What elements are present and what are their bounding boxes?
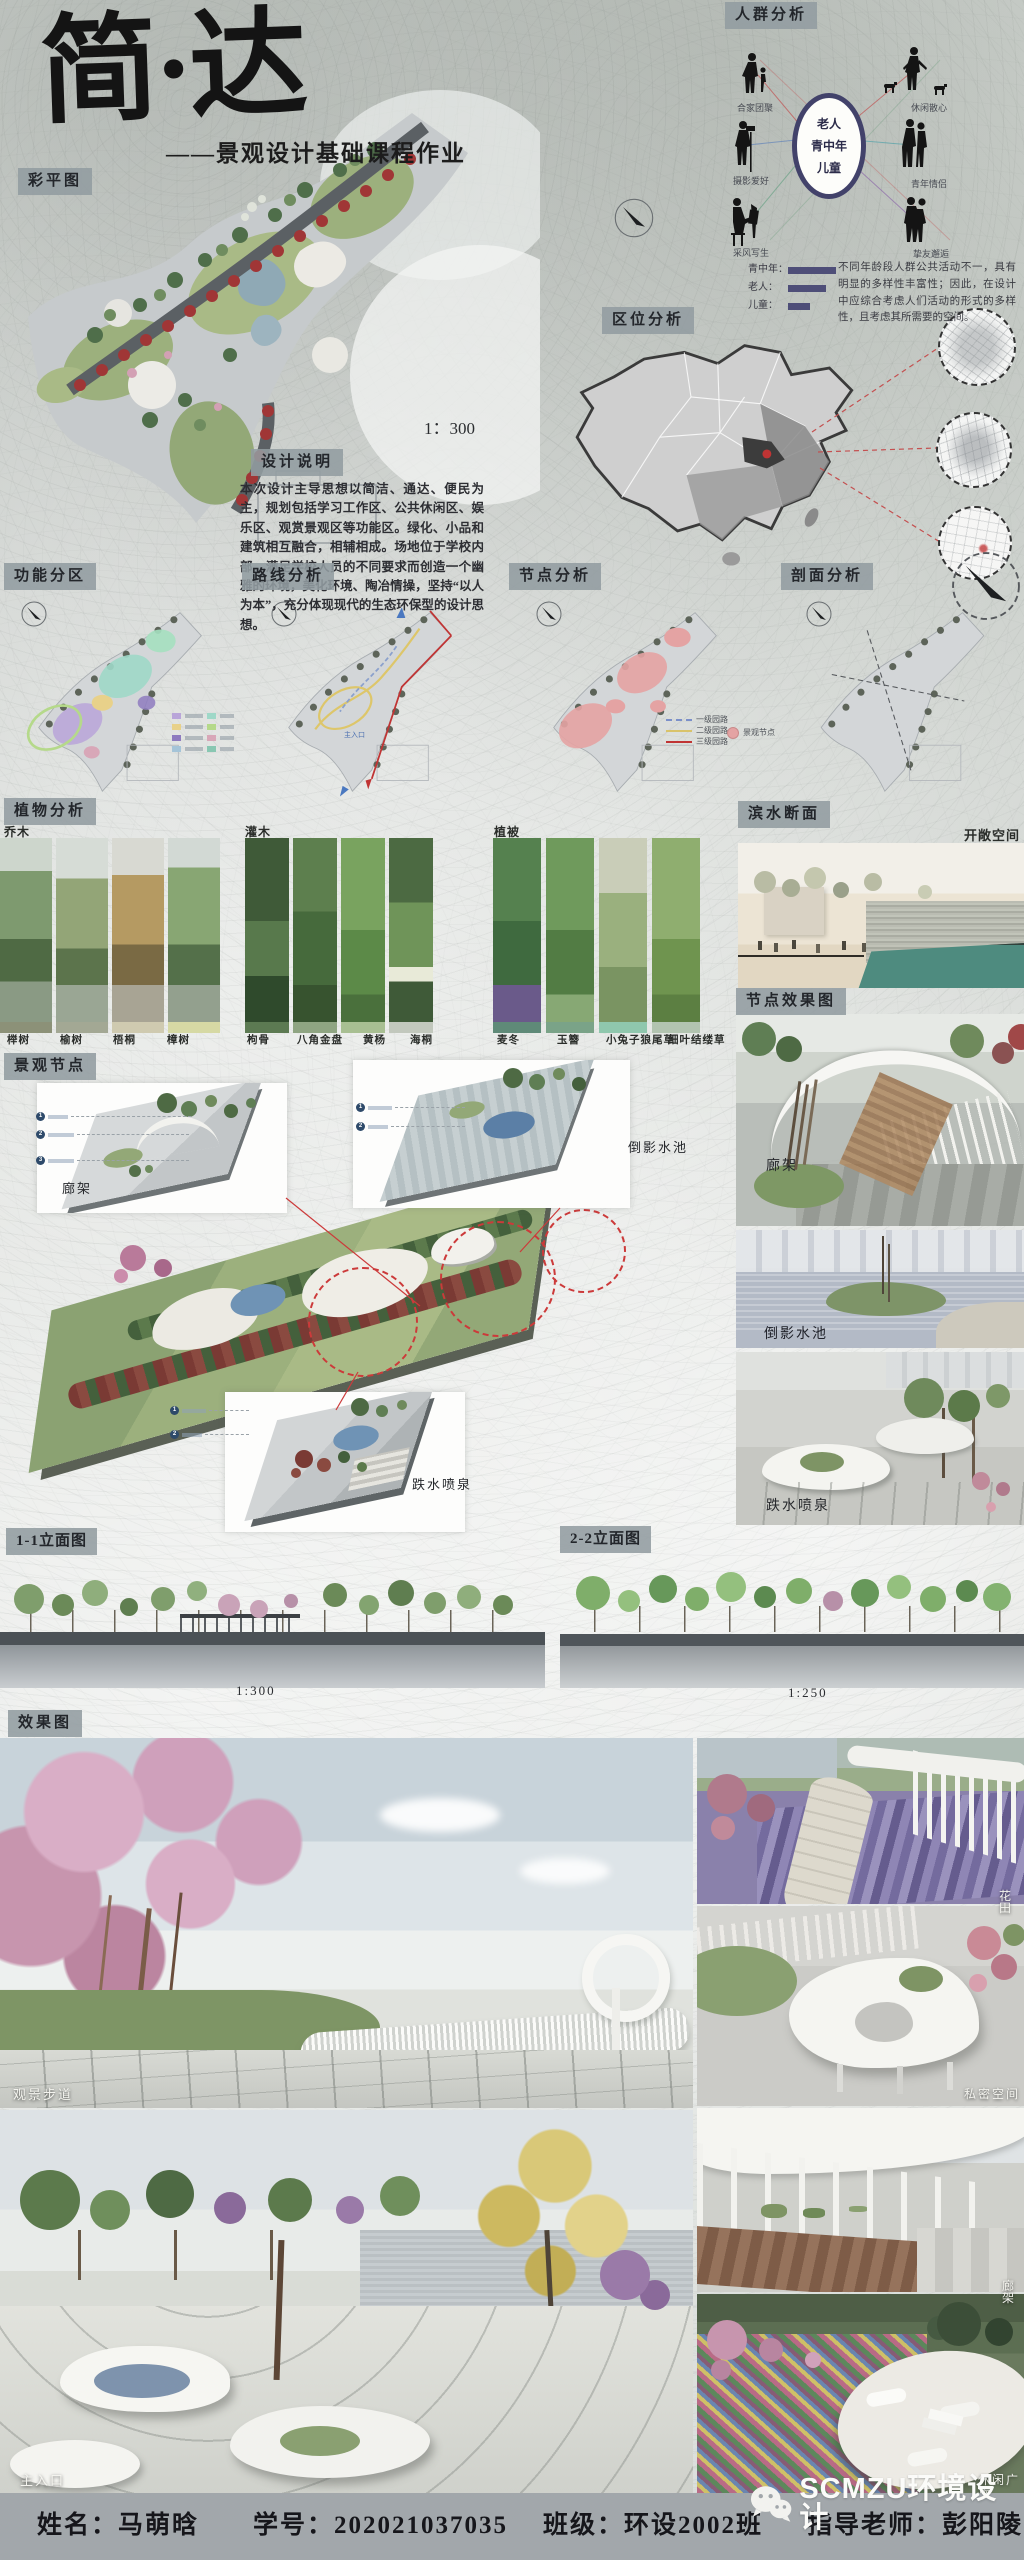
legend-bar bbox=[788, 285, 826, 292]
render-flower-field bbox=[697, 1738, 1024, 1904]
couple-figure-icon bbox=[900, 118, 930, 176]
plants-section-label: 植物分析 bbox=[4, 798, 96, 825]
kidney-table bbox=[789, 1958, 979, 2068]
table-planter bbox=[899, 1966, 943, 1992]
flower-shrubs bbox=[972, 1472, 990, 1490]
compass-icon bbox=[20, 600, 48, 628]
crowd-section-label: 人群分析 bbox=[725, 2, 817, 29]
legend-label: 老人： bbox=[748, 283, 788, 293]
axon-label: 倒影水池 bbox=[628, 1141, 688, 1154]
stair-column bbox=[612, 1988, 620, 2058]
footer-class: 班级：环设2002班 bbox=[543, 2513, 763, 2538]
dark-trees bbox=[937, 2302, 981, 2346]
analysis-panel-label: 功能分区 bbox=[4, 563, 96, 590]
plant-swatch bbox=[245, 1022, 289, 1033]
crowd-group-elderly: 老人 bbox=[797, 113, 861, 135]
plant-swatch bbox=[341, 1022, 385, 1033]
route-line-1 bbox=[666, 719, 692, 721]
painter-figure-icon bbox=[727, 196, 761, 248]
wechat-icon bbox=[748, 2483, 793, 2525]
watermark: SCMZU环境设计 bbox=[748, 2478, 1024, 2530]
plant-name: 梧桐 bbox=[113, 1036, 136, 1047]
page-subtitle: ——景观设计基础课程作业 bbox=[166, 142, 466, 165]
tower-skyline bbox=[886, 1352, 1024, 1388]
plan-scale: 1：300 bbox=[424, 420, 475, 437]
presentation-board: 简·达 ——景观设计基础课程作业 彩平图 bbox=[0, 0, 1024, 2560]
plant-swatch bbox=[389, 1022, 433, 1033]
plant-photo bbox=[341, 838, 385, 1022]
tree-band bbox=[20, 2170, 80, 2230]
render-label: 廊架 bbox=[1002, 2280, 1024, 2304]
elevation-ground bbox=[0, 1632, 545, 1645]
tree-cluster bbox=[904, 1378, 944, 1418]
axon-callout: 3 bbox=[36, 1156, 189, 1165]
plant-swatch bbox=[112, 1022, 164, 1033]
crowd-dots bbox=[758, 941, 762, 950]
plant-name: 枸骨 bbox=[247, 1036, 270, 1047]
render-label: 观景步道 bbox=[13, 2088, 73, 2101]
cloud bbox=[380, 1798, 500, 1832]
elevation-earth bbox=[0, 1645, 545, 1688]
family-figure-icon bbox=[740, 52, 770, 102]
axon-leader-lines bbox=[0, 1080, 700, 1540]
shrub-pink bbox=[707, 1774, 747, 1814]
white-bench bbox=[876, 1418, 974, 1454]
elevation-canopy bbox=[576, 1576, 610, 1610]
island-tree bbox=[882, 1236, 884, 1294]
pink-shrub-row bbox=[707, 2320, 747, 2360]
elevation-scale: 1:250 bbox=[788, 1686, 828, 1699]
purple-tree bbox=[600, 2250, 650, 2300]
render-label: 私密空间 bbox=[964, 2088, 1020, 2100]
plant-photo bbox=[546, 838, 594, 1022]
plant-photo bbox=[389, 838, 433, 1022]
plant-photo bbox=[56, 838, 108, 1022]
analysis-panel-label: 路线分析 bbox=[242, 563, 334, 590]
elevation-pergola bbox=[180, 1614, 300, 1634]
tree-cluster bbox=[754, 871, 776, 893]
tree-cluster bbox=[742, 1022, 776, 1056]
node-legend-label: 景观节点 bbox=[743, 729, 775, 737]
cloud bbox=[520, 1858, 610, 1884]
plant-name: 麦冬 bbox=[497, 1036, 520, 1047]
figure-label: 采风写生 bbox=[718, 249, 784, 258]
lawn-glimpse bbox=[761, 2204, 787, 2218]
axon-callout: 2 bbox=[170, 1430, 249, 1439]
node-legend-dot bbox=[727, 727, 739, 739]
building-mass bbox=[764, 887, 824, 935]
route-legend-label: 三级园路 bbox=[696, 738, 728, 746]
plant-photo bbox=[493, 838, 541, 1022]
plant-swatch bbox=[168, 1022, 220, 1033]
plan-section-label: 彩平图 bbox=[18, 168, 92, 195]
elevation-2-drawing bbox=[560, 1558, 1024, 1688]
figure-label: 摄影爱好 bbox=[718, 177, 784, 186]
main-entry-annotation: 主入口 bbox=[344, 732, 365, 739]
landscape-nodes-label: 景观节点 bbox=[4, 1053, 96, 1080]
legend-label: 儿童： bbox=[748, 301, 788, 311]
table-opening bbox=[855, 2002, 913, 2042]
plant-swatch bbox=[546, 1022, 594, 1033]
crowd-group-children: 儿童 bbox=[797, 157, 861, 179]
dog-walker-figure-icon bbox=[898, 46, 932, 98]
plant-photo bbox=[0, 838, 52, 1022]
axon-label: 廊架 bbox=[62, 1182, 92, 1195]
design-note-text: 本次设计主导思想以简洁、通达、便民为主，规划包括学习工作区、公共休闲区、娱乐区、… bbox=[240, 480, 484, 635]
figure-label: 挚友邂逅 bbox=[898, 250, 964, 259]
dog-icon bbox=[882, 82, 900, 94]
plant-swatch bbox=[293, 1022, 337, 1033]
paving bbox=[0, 2050, 693, 2108]
legend-bar bbox=[788, 267, 836, 274]
plant-name: 细叶结缕草 bbox=[668, 1036, 726, 1047]
node-render-label: 廊架 bbox=[766, 1160, 798, 1174]
plant-name: 榉树 bbox=[7, 1036, 30, 1047]
figure-label: 休闲散心 bbox=[896, 104, 962, 113]
bench-water bbox=[94, 2364, 190, 2398]
axon-callout: 1 bbox=[36, 1112, 191, 1121]
plant-name: 樟树 bbox=[167, 1036, 190, 1047]
figure-label: 合家团聚 bbox=[722, 104, 788, 113]
plant-swatch bbox=[493, 1022, 541, 1033]
plant-group-title: 灌木 bbox=[245, 826, 271, 838]
page-title: 简·达 bbox=[38, 0, 306, 138]
crowd-note: 不同年龄段人群公共活动不一，具有明显的多样性丰富性；因此，在设计中应综合考虑人们… bbox=[838, 260, 1016, 327]
route-legend-label: 一级园路 bbox=[696, 716, 728, 724]
node-render-label: 倒影水池 bbox=[764, 1328, 828, 1342]
plant-name: 榆树 bbox=[60, 1036, 83, 1047]
elevation-label: 1-1立面图 bbox=[6, 1528, 97, 1555]
axon-callout: 2 bbox=[36, 1130, 189, 1139]
analysis-panel-label: 节点分析 bbox=[509, 563, 601, 590]
elevation-canopy bbox=[14, 1584, 44, 1614]
tower-skyline bbox=[736, 1230, 1024, 1272]
plant-swatch bbox=[56, 1022, 108, 1033]
waterfront-annotation: 开敞空间 bbox=[964, 829, 1020, 842]
render-private-space bbox=[697, 1906, 1024, 2106]
render-label: 花田 bbox=[999, 1890, 1024, 1914]
render-leisure-plaza bbox=[697, 2294, 1024, 2493]
plant-photo bbox=[245, 838, 289, 1022]
location-inset-city bbox=[936, 412, 1012, 488]
pool-island bbox=[826, 1282, 946, 1316]
plaza-sculpture bbox=[928, 2408, 963, 2426]
plant-swatch bbox=[599, 1022, 647, 1033]
bench-planter bbox=[280, 2426, 360, 2456]
footer-student-id: 学号：202021037035 bbox=[253, 2513, 508, 2538]
plant-name: 海桐 bbox=[410, 1036, 433, 1047]
location-section-label: 区位分析 bbox=[602, 307, 694, 334]
axon-callout: 1 bbox=[170, 1406, 249, 1415]
route-legend-label: 二级园路 bbox=[696, 727, 728, 735]
plant-photo bbox=[168, 838, 220, 1022]
node-legend: 景观节点 bbox=[727, 727, 775, 738]
table-legs bbox=[837, 2064, 843, 2092]
plaza-bench bbox=[865, 2387, 907, 2408]
route-legend: 一级园路 二级园路 三级园路 bbox=[666, 714, 728, 747]
north-arrow-icon bbox=[612, 196, 656, 240]
plant-photo bbox=[293, 838, 337, 1022]
plant-group-title: 乔木 bbox=[4, 826, 30, 838]
renders-section-label: 效果图 bbox=[8, 1710, 82, 1737]
photographer-figure-icon bbox=[730, 120, 758, 174]
legend-label: 青中年： bbox=[748, 265, 788, 275]
waterfront-section-label: 滨水断面 bbox=[738, 801, 830, 828]
plant-name: 小兔子狼尾草 bbox=[606, 1036, 675, 1047]
route-line-2 bbox=[666, 730, 692, 732]
route-line-3 bbox=[666, 741, 692, 743]
compass-icon bbox=[535, 600, 563, 628]
axon-callout: 1 bbox=[356, 1103, 465, 1112]
white-bench-pool bbox=[60, 2346, 230, 2412]
legend-bar bbox=[788, 303, 810, 310]
footer-name: 姓名：马萌晗 bbox=[37, 2513, 199, 2538]
render-pergola-corridor bbox=[697, 2108, 1024, 2292]
elevation-label: 2-2立面图 bbox=[560, 1526, 651, 1553]
crowd-group-adults: 青中年 bbox=[797, 135, 861, 157]
dog-icon bbox=[932, 84, 950, 96]
flower-shrubs bbox=[967, 1926, 1001, 1960]
plant-photo bbox=[599, 838, 647, 1022]
plant-swatch bbox=[652, 1022, 700, 1033]
analysis-panel-label: 剖面分析 bbox=[781, 563, 873, 590]
elevation-scale: 1:300 bbox=[236, 1684, 276, 1697]
plant-name: 八角金盘 bbox=[297, 1036, 343, 1047]
elevation-ground bbox=[560, 1634, 1024, 1646]
render-main-entrance bbox=[0, 2110, 693, 2493]
crowd-legend: 青中年： 老人： 儿童： bbox=[748, 261, 836, 315]
waterfront-section-image bbox=[738, 843, 1024, 988]
design-note-label: 设计说明 bbox=[251, 449, 343, 476]
plant-photo bbox=[652, 838, 700, 1022]
elevation-1-drawing bbox=[0, 1558, 545, 1688]
compass-icon bbox=[948, 548, 1024, 624]
friends-figure-icon bbox=[902, 196, 932, 248]
function-zoning-legend bbox=[172, 710, 236, 754]
bench-planter bbox=[800, 1452, 844, 1472]
water-edge bbox=[697, 1738, 837, 1778]
plant-name: 黄杨 bbox=[363, 1036, 386, 1047]
axon-callout: 2 bbox=[356, 1122, 465, 1131]
watermark-text: SCMZU环境设计 bbox=[799, 2475, 1024, 2533]
node-renders-label: 节点效果图 bbox=[736, 988, 846, 1015]
plant-name: 玉簪 bbox=[557, 1036, 580, 1047]
node-render-label: 跌水喷泉 bbox=[766, 1500, 830, 1514]
plant-swatch bbox=[0, 1022, 52, 1033]
plant-group-title: 植被 bbox=[494, 826, 520, 838]
render-label: 主入口 bbox=[20, 2474, 65, 2487]
spiral-stair bbox=[582, 1934, 670, 2022]
plant-photo bbox=[112, 838, 164, 1022]
cherry-tree bbox=[0, 1738, 350, 2028]
compass-icon bbox=[805, 600, 833, 628]
elevation-earth bbox=[560, 1646, 1024, 1688]
section-ground-line bbox=[738, 955, 864, 957]
crowd-center-bubble: 老人 青中年 儿童 bbox=[792, 93, 866, 199]
render-viewing-walkway bbox=[0, 1738, 693, 2108]
axon-label: 跌水喷泉 bbox=[412, 1478, 472, 1491]
render-pergola bbox=[736, 1014, 1024, 1226]
figure-label: 青年情侣 bbox=[896, 180, 962, 189]
elevation-trunks bbox=[572, 1606, 1002, 1632]
